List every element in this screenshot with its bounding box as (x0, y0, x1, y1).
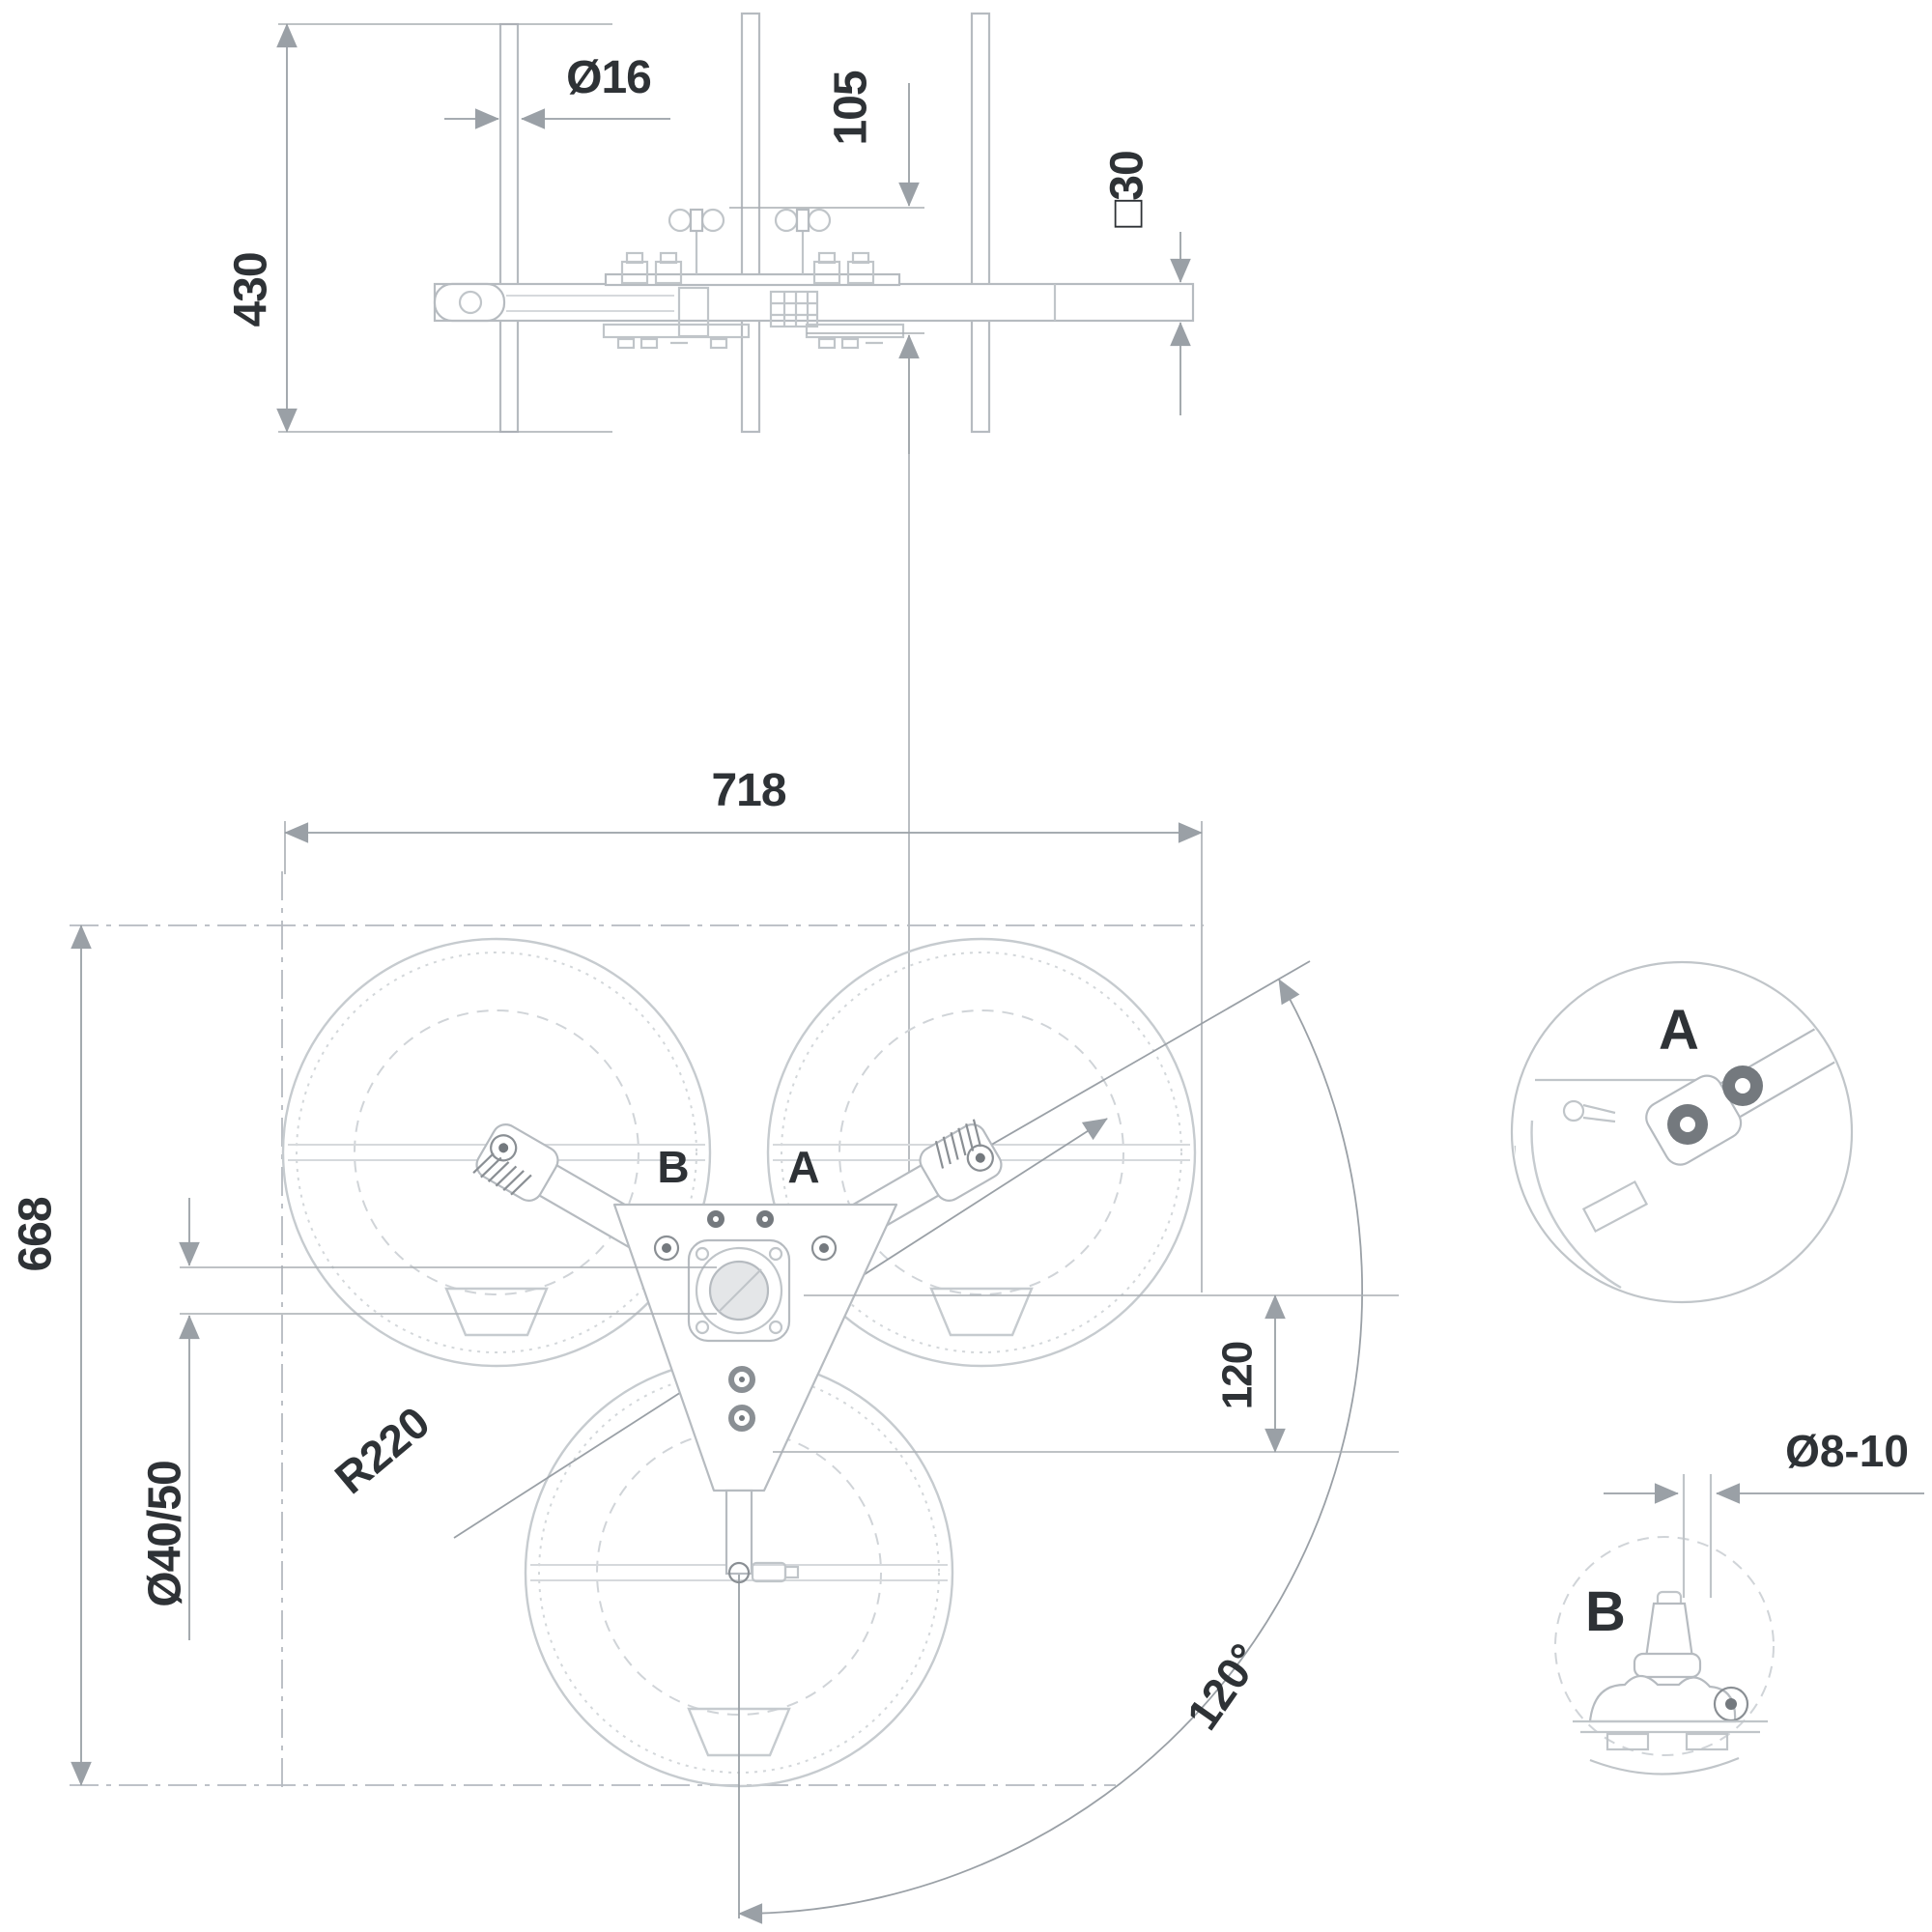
callout-a-label: A (787, 1142, 819, 1192)
dim-radius-label: R220 (326, 1397, 440, 1504)
dim-430-label: 430 (226, 252, 277, 327)
hub-assembly: B A (470, 1118, 1006, 1582)
bottom-plate-right (807, 325, 903, 337)
detail-b: Ø8-10 B (1555, 1426, 1924, 1775)
side-view: 430 Ø16 105 □30 (226, 14, 1193, 1177)
rod-left (500, 24, 518, 432)
dim-120-label: 120 (1214, 1342, 1262, 1409)
bolt-head (1646, 1604, 1692, 1658)
dimension-120: 120 (773, 1295, 1399, 1452)
reel-handle-hole (446, 1289, 547, 1335)
eye-bolt-right (776, 210, 830, 274)
reel-rim-arcs (1506, 1121, 1621, 1288)
dim-105-label: 105 (826, 71, 877, 145)
dim-bar-label: □30 (1102, 151, 1153, 227)
dim-hole-label: Ø8-10 (1785, 1426, 1909, 1476)
eye-bolt-left (669, 210, 724, 274)
dim-718-label: 718 (711, 765, 785, 816)
dim-668-label: 668 (11, 1197, 62, 1271)
bar-end-cap (435, 284, 504, 321)
detail-a: A (1506, 962, 1886, 1302)
drawing-page: 430 Ø16 105 □30 (0, 0, 1932, 1932)
bolt-collar (1634, 1654, 1700, 1677)
slot-magnified (1583, 1181, 1646, 1231)
arm-bottom (726, 1491, 798, 1582)
dimension-angle-120: 120° (739, 961, 1362, 1918)
detail-a-label: A (1659, 999, 1699, 1062)
rod-right (972, 14, 989, 432)
detail-b-label: B (1585, 1580, 1626, 1643)
dimension-rod-diameter: Ø16 (444, 52, 670, 119)
callout-b-label: B (657, 1142, 689, 1192)
plan-view: 120° R220 (11, 765, 1399, 1918)
dim-rod-label: Ø16 (566, 52, 651, 103)
bottom-plate-left (604, 325, 749, 337)
dimension-718: 718 (285, 765, 1202, 833)
eye-bolt-magnified (1564, 1101, 1615, 1122)
dimension-hole-diameter: Ø8-10 (1604, 1426, 1924, 1493)
dim-angle-label: 120° (1177, 1634, 1270, 1739)
rod-middle (742, 14, 759, 432)
base-arc (1590, 1758, 1739, 1775)
saddle-clamp (1590, 1676, 1735, 1721)
dimension-pole-diameter: Ø40/50 (140, 1198, 717, 1640)
technical-drawing: 430 Ø16 105 □30 (0, 0, 1932, 1932)
dimension-668: 668 (11, 925, 81, 1785)
dimension-430: 430 (226, 24, 612, 432)
dim-pole-label: Ø40/50 (140, 1461, 191, 1606)
